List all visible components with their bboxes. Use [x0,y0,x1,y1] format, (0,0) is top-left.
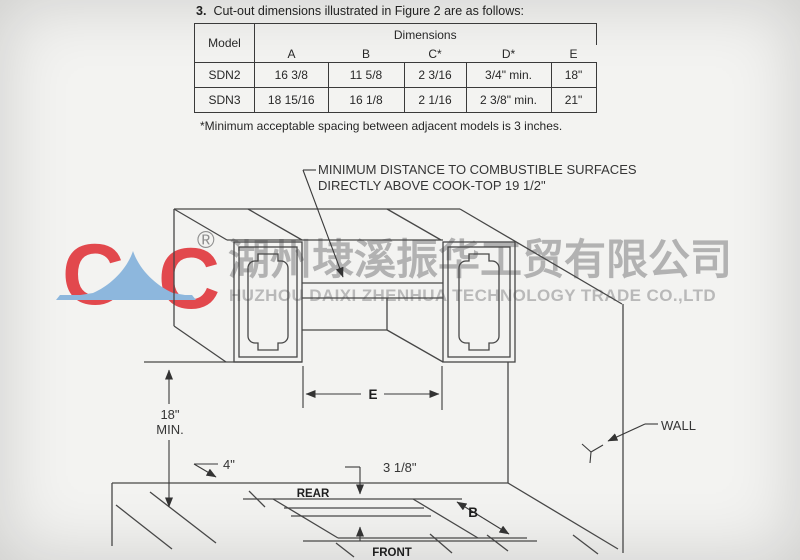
cooktop-unit-outline [144,209,622,483]
callout-line1: MINIMUM DISTANCE TO COMBUSTIBLE SURFACES [318,162,637,177]
dimension-18-min: 18" MIN. [156,370,183,507]
dim-3-1-8-label: 3 1/8" [383,460,417,475]
left-burner-cutout [234,242,302,362]
dim-e-label: E [368,387,377,402]
dimension-4: 4" [194,457,235,477]
front-label: FRONT [372,547,412,559]
dimension-e: E [303,366,442,410]
wall-callout: WALL [582,418,696,463]
rear-label: REAR [297,488,330,500]
dimension-b: B [457,502,509,534]
right-burner-cutout [443,242,515,362]
dim-min-label: MIN. [156,422,183,437]
document-page: C C ® 湖州埭溪振华工贸有限公司 HUZHOU DAIXI ZHENHUA … [0,0,800,560]
dim-18-label: 18" [160,407,179,422]
countertop-outline [112,483,598,557]
dimension-3-1-8: 3 1/8" [345,460,417,541]
figure-2-drawing: E 18" MIN. 4" 3 1/8" B REAR [0,0,800,560]
callout-line2: DIRECTLY ABOVE COOK-TOP 19 1/2" [318,178,546,193]
wall-lines [508,304,623,553]
countertop-cutout [243,491,527,538]
dim-b-label: B [468,505,478,520]
wall-label: WALL [661,418,696,433]
combustible-surface-callout: MINIMUM DISTANCE TO COMBUSTIBLE SURFACES… [303,162,637,277]
dim-4-label: 4" [223,457,235,472]
